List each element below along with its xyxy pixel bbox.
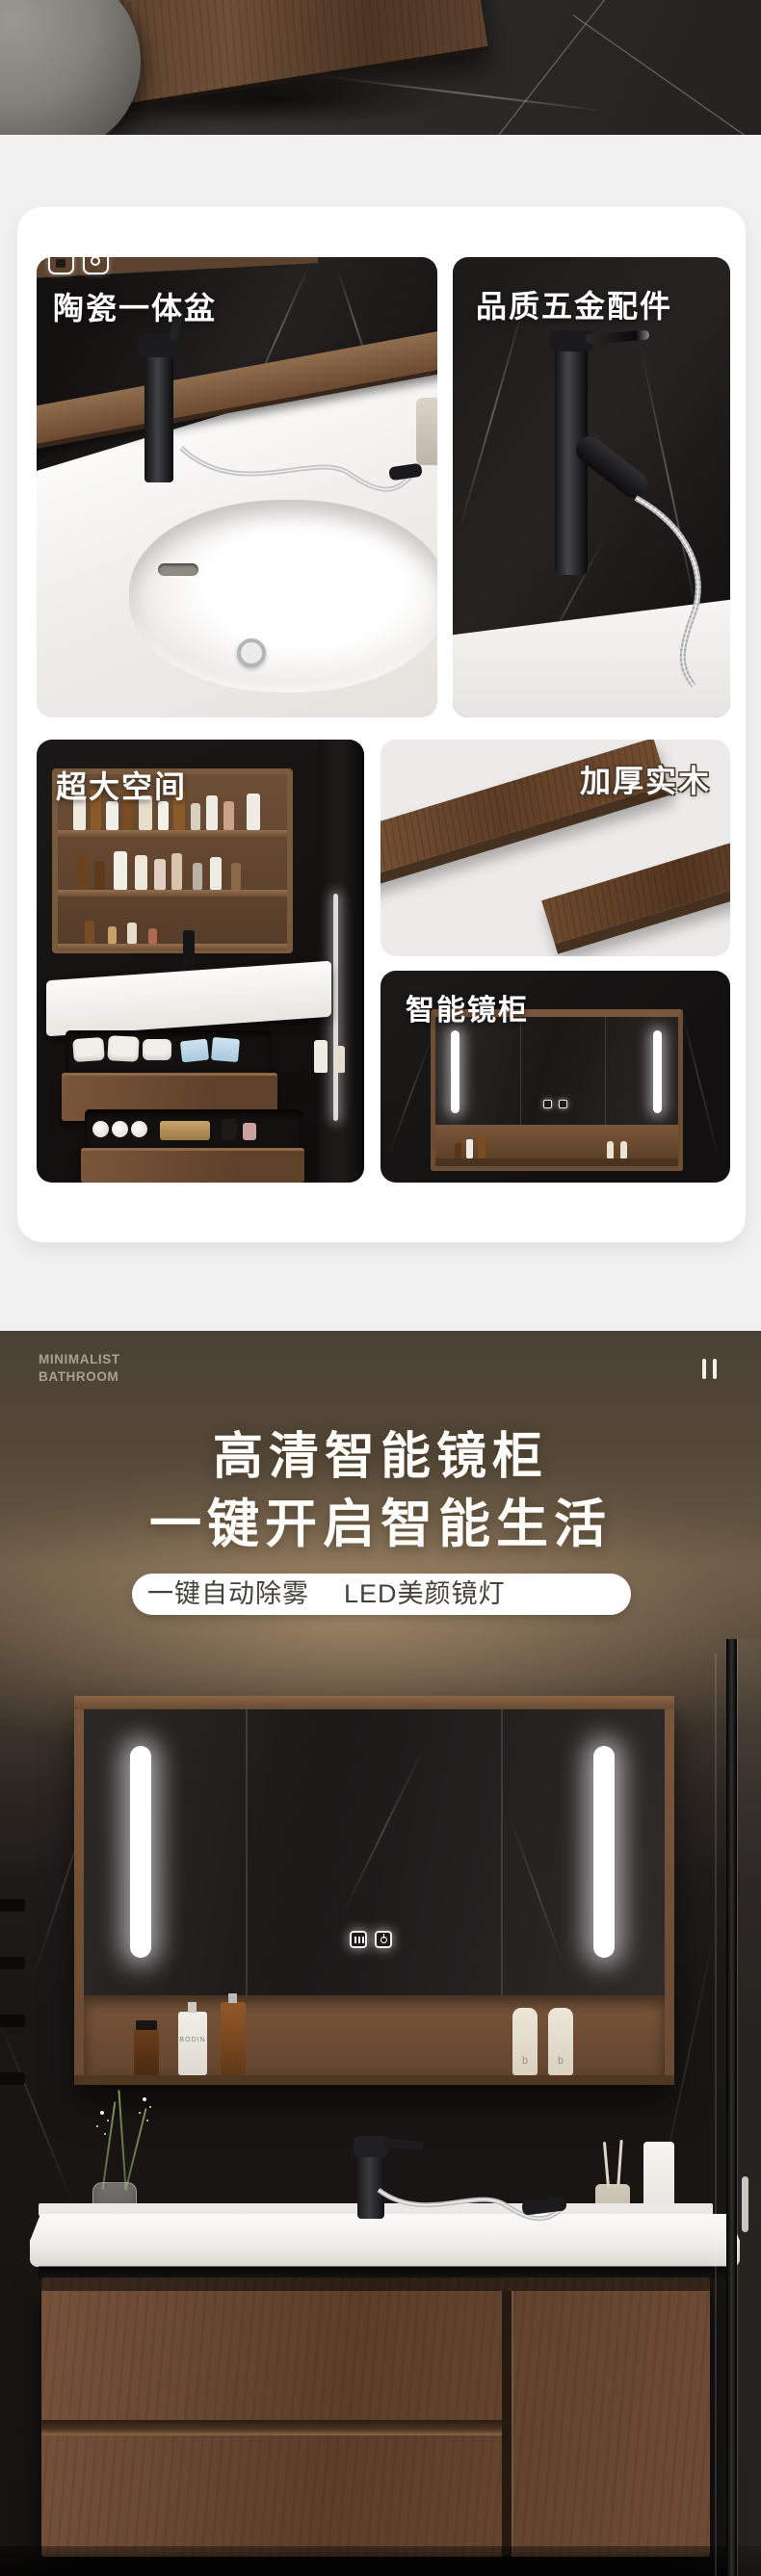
door-divider (605, 1017, 606, 1125)
marble-vein (459, 300, 526, 533)
lock-badge-icon (48, 257, 74, 274)
feature-tile-storage: 超大空间 (37, 740, 364, 1183)
product-detail-page: 陶瓷一体盆 品质五金配件 (0, 0, 761, 2576)
shelf-board (58, 830, 287, 837)
smart-mirror-cabinet: BODIN b b (74, 1696, 674, 2085)
faucet-lever (383, 2138, 425, 2150)
glass-edge-line (715, 1653, 717, 2576)
towel-roll (112, 1121, 128, 1137)
wood-grain (541, 827, 730, 944)
pullout-hose (171, 430, 422, 517)
towel (72, 1037, 105, 1062)
mirror-doors (84, 1709, 665, 1995)
feature-pill-text: 一键自动除雾LED美颜镜灯 (147, 1574, 506, 1615)
led-strip-right (593, 1746, 615, 1958)
bottle (247, 794, 260, 830)
smart-mirror-cabinet (431, 1009, 683, 1171)
plant-stem (118, 2090, 126, 2190)
bottle (108, 926, 117, 944)
camera-glyph (91, 257, 100, 266)
defog-touch-icon (543, 1100, 552, 1108)
feature-card: 陶瓷一体盆 品质五金配件 (17, 207, 746, 1242)
cabinet-shelf (435, 1125, 678, 1166)
shelf-bottom-lip (74, 2075, 674, 2085)
shelf-board (58, 944, 287, 950)
bottle (466, 1139, 473, 1158)
towel-roll (92, 1121, 109, 1137)
towel-rack-bar (0, 2015, 25, 2027)
bottle (191, 803, 200, 830)
glass-door-handle (742, 2176, 748, 2232)
cabinet-top-frame (74, 1696, 674, 1709)
top-photo-strip (0, 0, 761, 135)
tube (607, 1141, 614, 1158)
power-touch-icon[interactable] (375, 1931, 392, 1948)
pause-bar (702, 1359, 706, 1379)
basin-bowl (129, 500, 437, 692)
bottle (148, 928, 157, 944)
wood-plank (541, 827, 730, 953)
overflow-slot (158, 563, 198, 576)
pill-feature-2: LED美颜镜灯 (344, 1579, 506, 1608)
towel-rack-bar (0, 1957, 25, 1969)
bottle (478, 1135, 485, 1158)
plant-stem (124, 2108, 146, 2191)
box-pack (180, 1039, 209, 1063)
cream-tube: b (548, 2008, 573, 2075)
marble-vein (386, 1032, 433, 1159)
white-blossoms (143, 2097, 146, 2101)
box-pack (211, 1037, 240, 1062)
cream-tube: b (512, 2008, 538, 2075)
bottle (231, 863, 241, 890)
wood-grain (41, 2277, 710, 2557)
toothbrush (617, 2140, 622, 2186)
door-edge-highlight (512, 2291, 513, 2557)
pump-head (188, 2002, 197, 2013)
drain-cap (237, 638, 266, 667)
bottle (193, 863, 202, 890)
top-recess-shadow (41, 2277, 710, 2291)
pump-bottle: BODIN (178, 2012, 207, 2075)
shelf-board (58, 890, 287, 897)
mirror-doors (435, 1017, 678, 1125)
bottle (206, 795, 218, 830)
bottle (154, 859, 166, 890)
jar-cap (136, 2020, 157, 2030)
camera-badge-icon (83, 257, 109, 274)
tile-title: 加厚实木 (580, 757, 711, 801)
gold-tray (160, 1121, 210, 1140)
pause-bar (713, 1359, 717, 1379)
towel-rack-bar (0, 2072, 25, 2085)
tile-title: 品质五金配件 (476, 282, 672, 326)
bottle (223, 801, 234, 830)
towel (107, 1035, 139, 1062)
feature-tile-solid-wood: 加厚实木 (380, 740, 730, 956)
dispenser-pump (228, 1993, 237, 2003)
towel-roll (131, 1121, 147, 1137)
bottle (210, 857, 222, 890)
feature-tile-smart-mirror: 智能镜柜 (380, 971, 730, 1183)
lock-glyph (56, 259, 66, 268)
drawer-front (81, 1148, 304, 1183)
shower-glass-frame (726, 1639, 737, 2576)
white-blossoms (100, 2111, 104, 2115)
amber-dispenser (221, 2002, 246, 2075)
plant-stem (102, 2101, 117, 2189)
toothbrush (603, 2142, 610, 2188)
tile-title: 智能镜柜 (406, 986, 529, 1028)
counter-front-edge (30, 2240, 740, 2267)
hero-title-line1: 高清智能镜柜 (0, 1416, 761, 1488)
floor-shadow (0, 2546, 761, 2576)
bottle (135, 855, 147, 890)
tile-grout-line (471, 0, 609, 135)
bottle (114, 851, 127, 890)
brand-caption: MINIMALIST BATHROOM (39, 1351, 120, 1386)
power-glyph-stem (383, 1934, 385, 1939)
feature-pill: 一键自动除雾LED美颜镜灯 (132, 1574, 631, 1615)
marble-vein (0, 2013, 76, 2210)
bottle (333, 1046, 345, 1073)
tube (620, 1141, 627, 1158)
brand-line-1: MINIMALIST (39, 1351, 120, 1368)
pullout-hose (597, 488, 722, 690)
feature-section: 陶瓷一体盆 品质五金配件 (0, 135, 761, 1331)
makeup-item (222, 1119, 237, 1140)
defog-glyph (354, 1937, 356, 1943)
basin-counter (46, 961, 331, 1037)
door-divider (246, 1709, 248, 1995)
drawer-divider (41, 2420, 502, 2435)
pause-icon[interactable] (702, 1359, 717, 1379)
shower-glass-panel (737, 1639, 761, 2576)
open-drawer-bottom (85, 1109, 302, 1150)
brand-line-2: BATHROOM (39, 1368, 120, 1386)
makeup-item (243, 1123, 256, 1140)
cabinet-open-shelf: BODIN b b (84, 1995, 665, 2075)
mirror-led-strip (333, 894, 338, 1121)
towel (143, 1039, 171, 1060)
bottle (171, 853, 182, 890)
open-drawer-top (66, 1030, 272, 1075)
toilet (0, 0, 141, 135)
faucet-body (144, 346, 173, 482)
led-strip-left (451, 1030, 459, 1113)
tile-title: 超大空间 (56, 763, 187, 807)
faucet-lever (586, 330, 650, 345)
tile-title: 陶瓷一体盆 (53, 284, 217, 328)
bottle (455, 1143, 461, 1158)
power-touch-icon (559, 1100, 567, 1108)
led-strip-right (653, 1030, 662, 1113)
door-divider (520, 1017, 521, 1125)
towel-rack-bar (0, 1899, 25, 1912)
led-strip-left (130, 1746, 151, 1958)
hero-title-line2: 一键开启智能生活 (0, 1481, 761, 1557)
hero-section: MINIMALIST BATHROOM 高清智能镜柜 一键开启智能生活 一键自动… (0, 1331, 761, 2576)
bottle (94, 861, 105, 890)
bottle (127, 923, 137, 944)
amber-jar (134, 2029, 159, 2075)
bottle (85, 921, 94, 944)
bottle-label: BODIN (178, 2037, 207, 2043)
vanity-cabinet (41, 2277, 710, 2557)
feature-tile-ceramic-basin: 陶瓷一体盆 (37, 257, 437, 717)
door-divider (501, 1709, 503, 1995)
door-gap (502, 2291, 512, 2557)
pill-feature-1: 一键自动除雾 (147, 1579, 309, 1608)
bottle (77, 855, 89, 890)
marble-vein (678, 1002, 720, 1160)
tile-grout-line (572, 14, 761, 135)
bottle (314, 1040, 328, 1073)
defog-touch-icon[interactable] (350, 1931, 367, 1948)
feature-tile-hardware: 品质五金配件 (453, 257, 730, 717)
